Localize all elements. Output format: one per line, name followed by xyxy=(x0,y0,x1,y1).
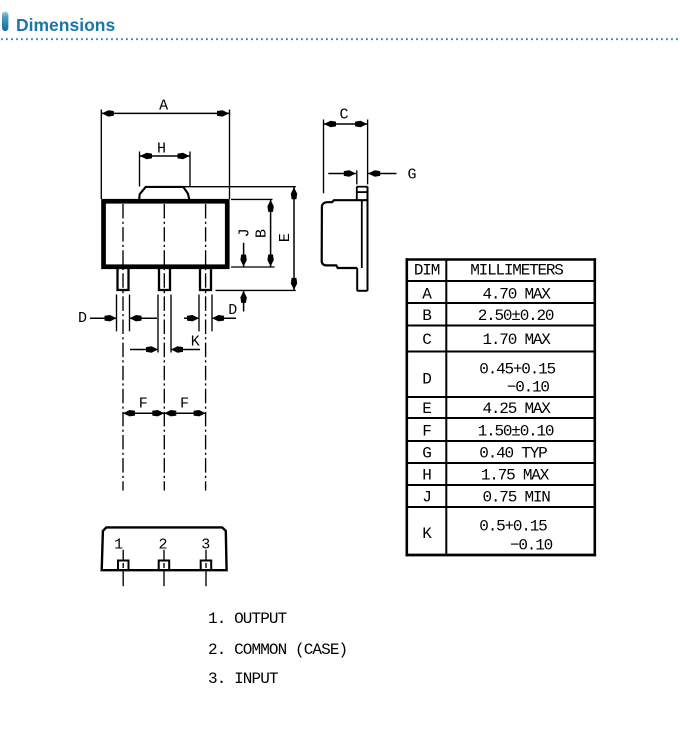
svg-text:C: C xyxy=(339,107,348,124)
svg-text:2.50±0.20: 2.50±0.20 xyxy=(478,307,554,325)
svg-text:H: H xyxy=(422,467,431,485)
svg-text:J: J xyxy=(422,489,430,507)
svg-text:F: F xyxy=(180,396,189,413)
svg-text:E: E xyxy=(277,233,294,242)
svg-text:K: K xyxy=(422,525,432,543)
svg-text:G: G xyxy=(422,445,431,463)
svg-text:4.70 MAX: 4.70 MAX xyxy=(483,285,552,303)
svg-text:E: E xyxy=(422,400,431,418)
svg-text:3: 3 xyxy=(201,537,210,554)
svg-text:0.75 MIN: 0.75 MIN xyxy=(483,489,551,507)
svg-text:D: D xyxy=(78,310,87,327)
svg-text:1. OUTPUT: 1. OUTPUT xyxy=(208,610,287,628)
svg-text:−0.10: −0.10 xyxy=(510,536,553,554)
svg-text:A: A xyxy=(159,97,168,114)
svg-text:1.50±0.10: 1.50±0.10 xyxy=(478,423,554,441)
svg-text:DIM: DIM xyxy=(414,262,440,280)
svg-text:G: G xyxy=(407,167,416,184)
svg-text:F: F xyxy=(139,396,148,413)
svg-text:1.75 MAX: 1.75 MAX xyxy=(481,467,550,485)
svg-text:D: D xyxy=(422,370,431,388)
svg-text:3. INPUT: 3. INPUT xyxy=(208,670,278,688)
svg-text:MILLIMETERS: MILLIMETERS xyxy=(470,262,563,280)
svg-text:B: B xyxy=(254,229,271,238)
svg-text:0.45+0.15: 0.45+0.15 xyxy=(479,361,555,379)
svg-text:D: D xyxy=(228,302,237,319)
svg-text:1: 1 xyxy=(114,537,123,554)
svg-text:F: F xyxy=(422,423,431,441)
svg-text:2. COMMON (CASE): 2. COMMON (CASE) xyxy=(208,641,347,659)
svg-text:0.5+0.15: 0.5+0.15 xyxy=(479,518,547,536)
svg-text:H: H xyxy=(157,141,166,158)
svg-text:1.70 MAX: 1.70 MAX xyxy=(483,331,552,349)
svg-text:0.40 TYP: 0.40 TYP xyxy=(479,445,547,463)
svg-text:Dimensions: Dimensions xyxy=(16,15,115,35)
svg-text:J: J xyxy=(236,228,253,237)
svg-text:4.25 MAX: 4.25 MAX xyxy=(483,400,552,418)
svg-text:K: K xyxy=(191,333,200,350)
svg-text:2: 2 xyxy=(158,537,167,554)
svg-text:−0.10: −0.10 xyxy=(507,378,550,396)
svg-text:B: B xyxy=(422,307,431,325)
svg-text:A: A xyxy=(422,285,432,303)
svg-text:C: C xyxy=(422,331,431,349)
